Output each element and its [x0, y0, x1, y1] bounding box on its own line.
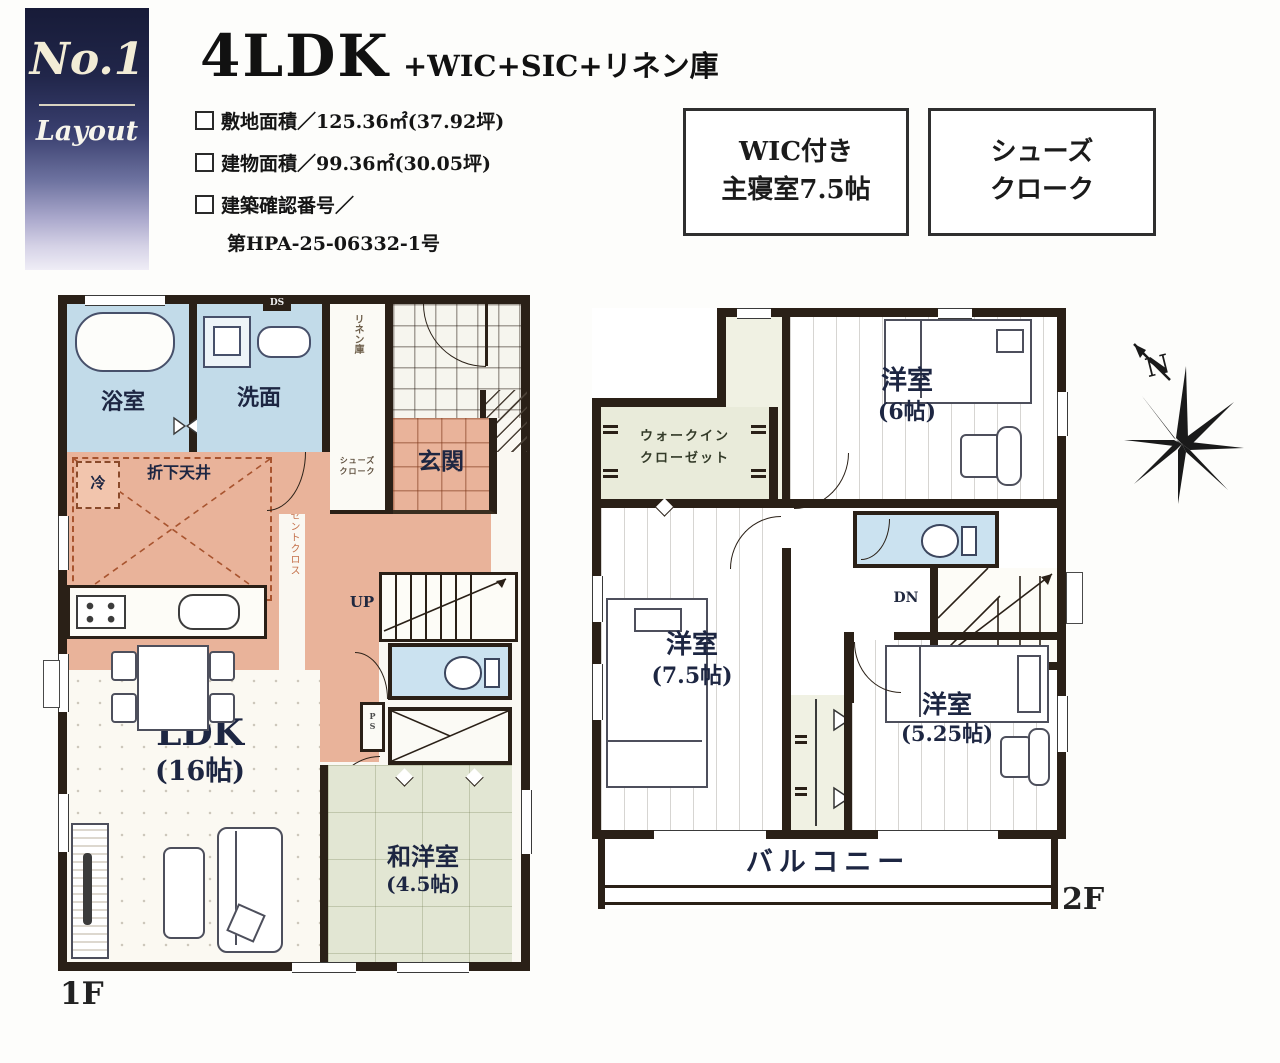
dining-chair [111, 693, 137, 723]
toilet-bowl [444, 656, 482, 690]
room-bath-label: 浴室 [71, 390, 175, 416]
window-ledge [1066, 572, 1083, 624]
compass-north-label: N [1143, 349, 1173, 384]
shoes-cloak-label-2: クローク [330, 466, 385, 477]
closet-cross-lines [392, 711, 508, 761]
toilet-tank [484, 658, 500, 688]
hall-front-of-stairs [305, 514, 491, 572]
window [292, 962, 356, 973]
spec-approval: 建築確認番号／ [195, 191, 354, 218]
window [58, 516, 69, 570]
plan-title-suffix: +WIC+SIC+リネン庫 [403, 49, 719, 83]
stairs-direction-line [382, 575, 509, 633]
window [85, 295, 165, 306]
kitchen-ceiling-label: 折下天井 [119, 464, 239, 483]
coffee-table [163, 847, 205, 939]
window [737, 308, 771, 319]
hanger-pipe-mark [603, 431, 618, 434]
window [397, 962, 469, 973]
closet-washitsu [388, 707, 512, 765]
room-washitsu-label: 和洋室 [338, 843, 508, 871]
plan-title-main: 4LDK [200, 22, 390, 90]
toilet-tank [961, 526, 977, 556]
refrigerator-label: 冷 [78, 475, 118, 493]
stove [76, 595, 126, 629]
floor-plan-2f: ウォークイン クローゼット [592, 308, 1066, 839]
wall [1057, 308, 1066, 839]
bed-pillow [996, 329, 1024, 353]
refrigerator: 冷 [76, 461, 120, 509]
wall [592, 398, 601, 508]
window [592, 576, 603, 622]
room-entrance: 玄関 [393, 418, 497, 514]
window [592, 664, 603, 720]
hanger-pipe-mark [751, 425, 766, 428]
checkbox-icon [195, 111, 214, 130]
closet-linen-label: リネン庫 [350, 314, 365, 354]
room-wic: ウォークイン クローゼット [601, 407, 769, 499]
duct-space-label: DS [263, 295, 291, 311]
spec-site-area: 敷地面積／125.36㎡(37.92坪) [195, 107, 504, 134]
dining-chair [209, 693, 235, 723]
toilet-bowl [921, 524, 959, 558]
room-wic-label-1: ウォークイン [601, 429, 769, 444]
wall [717, 308, 726, 407]
checkbox-icon [195, 153, 214, 172]
bathtub [75, 312, 175, 372]
badge-layout-label: Layout [25, 116, 149, 147]
room-entrance-label: 玄関 [393, 448, 489, 475]
hanger-pipe-mark [795, 735, 807, 738]
wall [782, 317, 790, 499]
wall [894, 632, 1057, 640]
window [938, 308, 972, 319]
stairs-down-label: DN [886, 590, 926, 607]
window-ledge [43, 660, 60, 708]
room-toilet-1f [388, 643, 512, 700]
wall [592, 398, 726, 407]
bed-fold-line [608, 740, 702, 742]
folding-door-icon [173, 416, 199, 436]
kitchen-sink [178, 594, 240, 630]
room6-label: 洋室 [842, 366, 972, 397]
floor-plan-page: No.1 Layout 4LDK +WIC+SIC+リネン庫 敷地面積／125.… [0, 0, 1280, 1063]
room6-size: (6帖) [842, 400, 972, 426]
hanger-pipe-mark [795, 787, 807, 790]
wash-basin [257, 326, 311, 358]
stairs-up-label: UP [345, 594, 379, 612]
room-washitsu: 和洋室 (4.5帖) [320, 765, 512, 962]
window [1057, 696, 1068, 752]
wall [769, 407, 778, 499]
hanger-pipe-mark [795, 793, 807, 796]
badge-divider [39, 104, 135, 106]
plan-number-badge: No.1 Layout [25, 8, 149, 270]
hanger-pipe-mark [603, 425, 618, 428]
feature-box-wic: WIC付き 主寝室7.5帖 [683, 108, 909, 236]
closet-door-mark [465, 768, 483, 786]
toilet-door-arc [861, 519, 890, 560]
room-ldk-size: (16帖) [125, 756, 275, 788]
feature-box-shoes: シューズ クローク [928, 108, 1156, 236]
wall [844, 695, 852, 830]
window [521, 790, 532, 854]
window [1057, 392, 1068, 436]
balcony-label: バルコニー [605, 847, 1051, 879]
desk-chair-back-room6 [996, 426, 1022, 486]
checkbox-icon [195, 195, 214, 214]
hanger-pipe-mark [751, 475, 766, 478]
room-bath: 浴室 [67, 304, 197, 460]
kitchen-counter [67, 585, 267, 639]
bed-pillow [634, 608, 682, 632]
floor-label-2f: 2F [1062, 882, 1132, 917]
hanger-pipe-mark [795, 741, 807, 744]
washing-machine-drum [213, 326, 241, 356]
floor-plan-1f: 浴室 洗面 DS リネン庫 玄関 シューズ クローク [58, 295, 530, 971]
room-washroom-label: 洗面 [207, 386, 311, 412]
room-toilet-2f [853, 511, 999, 568]
room-washroom: 洗面 [197, 304, 330, 460]
spec-approval-number: 第HPA-25-06332-1号 [227, 229, 440, 256]
plan-number: No.1 [25, 34, 149, 85]
room75-label: 洋室 [632, 630, 752, 661]
closet-divider [815, 699, 817, 826]
hanger-pipe-mark [751, 469, 766, 472]
hanger-pipe-mark [751, 431, 766, 434]
floor-label-1f: 1F [60, 976, 130, 1013]
room-wic-label-2: クローゼット [601, 451, 769, 466]
toilet-door-arc [355, 652, 388, 699]
room-washitsu-size: (4.5帖) [338, 873, 508, 897]
shoes-cloak-label-1: シューズ [330, 455, 385, 466]
pipe-space: PS [360, 702, 385, 752]
pipe-space-label: PS [368, 711, 378, 731]
closet-door-mark [395, 768, 413, 786]
tv-screen [83, 853, 92, 925]
front-door-leaf [485, 304, 488, 366]
compass-north-icon: N [1112, 332, 1252, 512]
wall [782, 548, 791, 830]
hanger-pipe-mark [603, 475, 618, 478]
room-kitchen: 冷 折下天井 [67, 452, 279, 672]
window [58, 794, 69, 852]
bed-pillow [1017, 655, 1041, 713]
wall [844, 632, 854, 703]
balcony: バルコニー [598, 839, 1058, 909]
chair-back-room525 [1028, 728, 1050, 786]
spec-building-area: 建物面積／99.36㎡(30.05坪) [195, 149, 491, 176]
room525-label: 洋室 [877, 690, 1017, 720]
dining-chair [111, 651, 137, 681]
room75-size: (7.5帖) [632, 664, 752, 690]
desk-chair-room6 [960, 434, 998, 478]
dining-chair [209, 651, 235, 681]
closet-linen: リネン庫 [330, 304, 393, 445]
stairs-1f [379, 572, 518, 642]
balcony-railing [605, 885, 1051, 905]
closet-shoes-cloak: シューズ クローク [330, 437, 393, 518]
bed-room75 [606, 598, 708, 788]
dining-table [137, 645, 209, 731]
hanger-pipe-mark [603, 469, 618, 472]
room525-size: (5.25帖) [877, 722, 1017, 747]
plan-title: 4LDK +WIC+SIC+リネン庫 [200, 22, 719, 90]
